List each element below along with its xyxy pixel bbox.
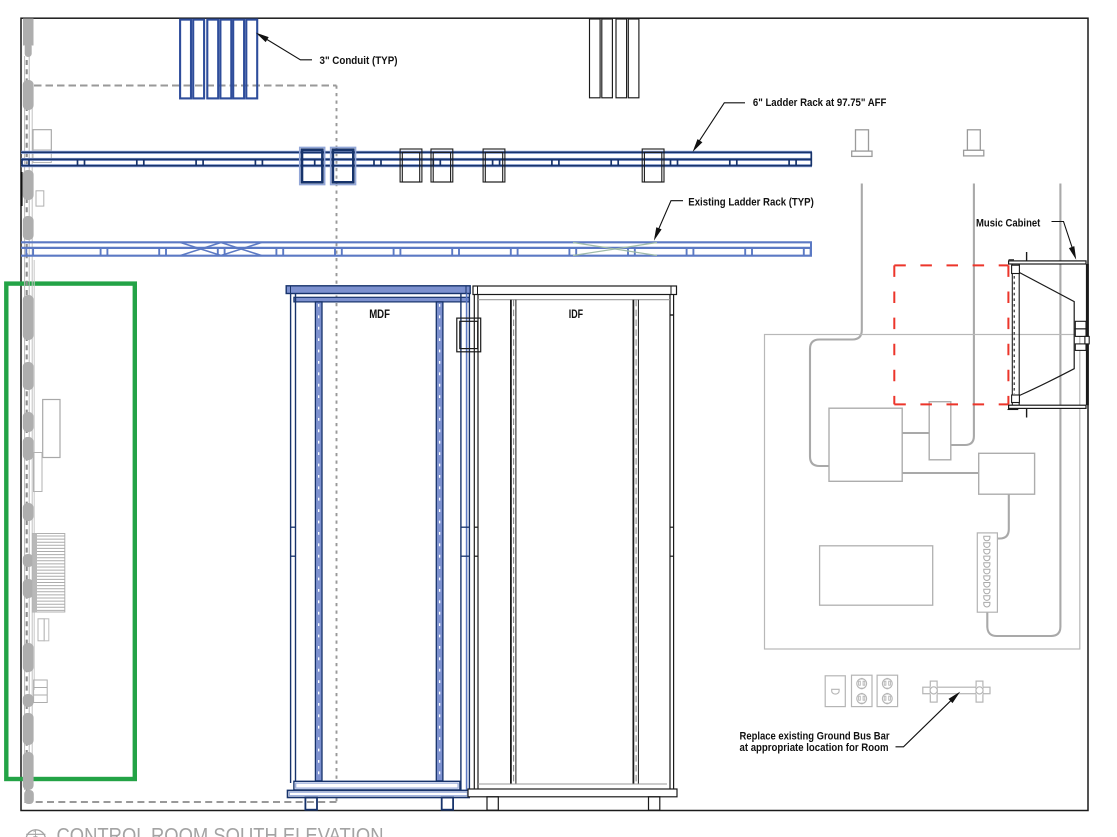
svg-text:IDF: IDF (569, 308, 583, 321)
svg-text:CONTROL ROOM SOUTH ELEVATION: CONTROL ROOM SOUTH ELEVATION (57, 824, 384, 837)
svg-text:Existing Ladder Rack (TYP): Existing Ladder Rack (TYP) (688, 196, 814, 208)
svg-text:at appropriate location for Ro: at appropriate location for Room (740, 742, 889, 754)
svg-text:1: 1 (33, 829, 38, 837)
svg-text:3" Conduit (TYP): 3" Conduit (TYP) (320, 55, 398, 67)
svg-text:6" Ladder Rack at 97.75" AFF: 6" Ladder Rack at 97.75" AFF (753, 97, 887, 109)
svg-text:Replace existing Ground Bus Ba: Replace existing Ground Bus Bar (740, 730, 890, 742)
svg-text:Music Cabinet: Music Cabinet (976, 217, 1040, 229)
svg-text:MDF: MDF (369, 308, 390, 321)
